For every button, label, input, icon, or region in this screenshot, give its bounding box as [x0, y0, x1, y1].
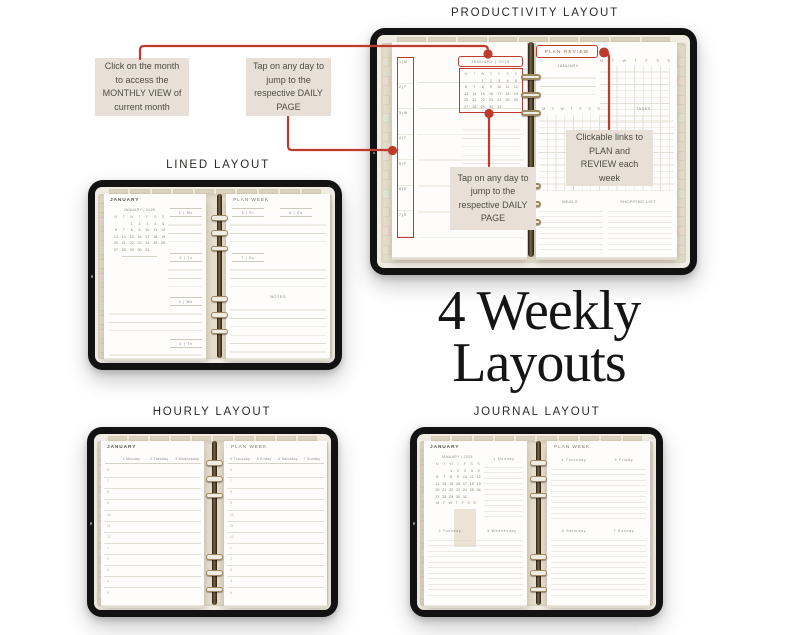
day-header[interactable]: 7 Sunday [300, 457, 324, 464]
lined-left-page: JANUARY JANUARY | 2025 MTWTFSS1234567891… [104, 194, 206, 358]
time-column-header [105, 457, 118, 464]
day-lines [230, 262, 326, 290]
mini-calendar-link[interactable]: MTWTFSS123456789101112131415161718192021… [459, 68, 523, 113]
productivity-layout-title: PRODUCTIVITY LAYOUT [390, 7, 680, 19]
day-lines [168, 217, 202, 250]
month-label[interactable]: JANUARY [107, 445, 136, 450]
shopping-list-label: SHOPPING LIST [610, 199, 666, 204]
day-header[interactable]: 6 Saturday [276, 457, 300, 464]
day-cell[interactable]: 3 | We [170, 297, 202, 306]
month-label[interactable]: JANUARY [430, 445, 459, 450]
tracker-weekday-letters: MTWTFSS [542, 107, 600, 112]
month-header-link[interactable]: JANUARY | 2025 [458, 56, 523, 67]
shopping-lines [608, 206, 672, 250]
mini-calendar-header[interactable]: JANUARY | 2025 [112, 208, 167, 212]
day-lines [551, 535, 646, 599]
binder-rings-bottom [530, 554, 547, 592]
binder-rings-bottom [211, 296, 228, 334]
day-header[interactable]: 1 Monday [486, 455, 522, 462]
binder-rings-bottom [206, 554, 223, 592]
tablet-hourly: JANUARY 1 Monday 2 Tuesday 3 Wednesday 6… [87, 427, 338, 617]
hourly-layout-title: HOURLY LAYOUT [112, 406, 312, 418]
side-button [413, 522, 416, 525]
journal-layout-title: JOURNAL LAYOUT [437, 406, 637, 418]
right-index-tabs[interactable] [677, 57, 685, 255]
tablet-journal: JANUARY JANUARY | 2025 MTWTFSS1234567891… [410, 427, 663, 617]
day-header[interactable]: 2 Tuesday [145, 457, 173, 464]
day-lines [168, 262, 202, 292]
side-button [91, 275, 94, 278]
left-index-tabs[interactable] [382, 57, 390, 255]
plan-review-link[interactable]: PLAN REVIEW [536, 45, 598, 58]
binder-rings-top [521, 74, 541, 116]
day-header[interactable]: 3 Wednesday [173, 457, 201, 464]
day-lines [484, 462, 522, 518]
mini-calendar: MTWTFSS123456789101112131415161718192021… [462, 71, 520, 110]
day-links-column[interactable]: 1 | M2 | T3 | W4 | T5 | F6 | S7 | S [397, 57, 414, 238]
mini-calendar-header[interactable]: JANUARY | 2025 [434, 455, 480, 459]
day-header[interactable]: 6 Saturday [555, 527, 593, 534]
day-header[interactable]: 5 Friday [252, 457, 276, 464]
mini-calendar[interactable]: MTWTFSS123456789101112131415161718192021… [434, 461, 482, 500]
hour-lines [227, 467, 324, 597]
hour-lines [104, 467, 201, 597]
binder-rings-top [211, 215, 228, 251]
month-label[interactable]: JANUARY [110, 198, 139, 203]
plan-week-label[interactable]: PLAN WEEK [233, 198, 269, 203]
callout-daily-page-top: Tap on any day to jump to the respective… [246, 58, 331, 116]
callout-daily-page-inner: Tap on any day to jump to the respective… [450, 167, 536, 230]
binder-rings-top [206, 460, 223, 498]
habit-weekday-letters: MTWTFSS [436, 501, 476, 506]
main-title: 4 Weekly Layouts [403, 286, 675, 389]
day-lines [109, 347, 202, 356]
day-lines [109, 306, 202, 334]
side-button [373, 152, 376, 155]
meals-lines [539, 206, 603, 250]
day-cell[interactable]: 6 | Sa [280, 208, 312, 217]
day-header[interactable]: 3 Wednesday [482, 527, 522, 534]
side-button [90, 522, 93, 525]
hourly-right-page: PLAN WEEK 4 Thursday 5 Friday 6 Saturday… [224, 441, 327, 605]
tablet-lined: JANUARY JANUARY | 2025 MTWTFSS1234567891… [88, 180, 342, 370]
callout-monthly-view: Click on the month to access the MONTHLY… [95, 58, 189, 116]
journal-right-page: PLAN WEEK 4 Thursday 5 Friday 6 Saturday… [547, 441, 650, 605]
journal-left-page: JANUARY JANUARY | 2025 MTWTFSS1234567891… [424, 441, 527, 605]
plan-week-label[interactable]: PLAN WEEK [554, 445, 590, 450]
month-label: JANUARY [544, 63, 592, 68]
day-header[interactable]: 4 Thursday [555, 456, 593, 463]
hourly-screen: JANUARY 1 Monday 2 Tuesday 3 Wednesday 6… [94, 434, 331, 610]
lined-right-page: PLAN WEEK 5 | Fr 6 | Sa 7 | Su NOTES [226, 194, 330, 358]
marketing-graphic: PRODUCTIVITY LAYOUT LINED LAYOUT HOURLY … [0, 0, 794, 635]
notes-lines [230, 302, 326, 354]
day-header[interactable]: 5 Friday [605, 456, 643, 463]
notes-label: NOTES [253, 294, 303, 299]
day-column-headers[interactable]: 4 Thursday 5 Friday 6 Saturday 7 Sunday [228, 457, 324, 464]
mini-calendar[interactable]: MTWTFSS123456789101112131415161718192021… [112, 214, 167, 253]
month-header-label: JANUARY | 2025 [471, 60, 510, 64]
day-header[interactable]: 1 Monday [118, 457, 146, 464]
day-lines [551, 464, 646, 519]
plan-lines [540, 70, 596, 102]
callout-plan-review: Clickable links to PLAN and REVIEW each … [566, 130, 653, 186]
main-title-line1: 4 Weekly [403, 286, 675, 338]
day-column-list: 1 | M2 | T3 | W4 | T5 | F6 | S7 | S [398, 58, 413, 237]
tasks-label: TASKS [636, 106, 651, 111]
day-lines [428, 535, 523, 599]
lined-layout-title: LINED LAYOUT [118, 159, 318, 171]
day-cell[interactable]: 1 | Mo [170, 208, 202, 217]
day-header[interactable]: 2 Tuesday [432, 527, 468, 534]
journal-screen: JANUARY JANUARY | 2025 MTWTFSS1234567891… [417, 434, 656, 610]
main-title-line2: Layouts [403, 338, 675, 390]
binder-rings-top [530, 460, 547, 498]
day-header[interactable]: 7 Sunday [605, 527, 643, 534]
plan-review-label: PLAN REVIEW [545, 49, 589, 54]
section-divider [122, 256, 157, 257]
day-cell[interactable]: 5 | Fr [232, 208, 264, 217]
hourly-left-page: JANUARY 1 Monday 2 Tuesday 3 Wednesday 6… [101, 441, 204, 605]
habit-weekday-letters: MTWTFSS [600, 59, 670, 64]
day-cell[interactable]: 2 | Tu [170, 253, 202, 262]
day-cell[interactable]: 7 | Su [232, 253, 264, 262]
plan-week-label[interactable]: PLAN WEEK [231, 445, 267, 450]
day-column-headers[interactable]: 1 Monday 2 Tuesday 3 Wednesday [105, 457, 201, 464]
day-lines [230, 217, 326, 250]
meals-label: MEALS [550, 199, 590, 204]
day-header[interactable]: 4 Thursday [228, 457, 252, 464]
lined-screen: JANUARY JANUARY | 2025 MTWTFSS1234567891… [95, 187, 335, 363]
